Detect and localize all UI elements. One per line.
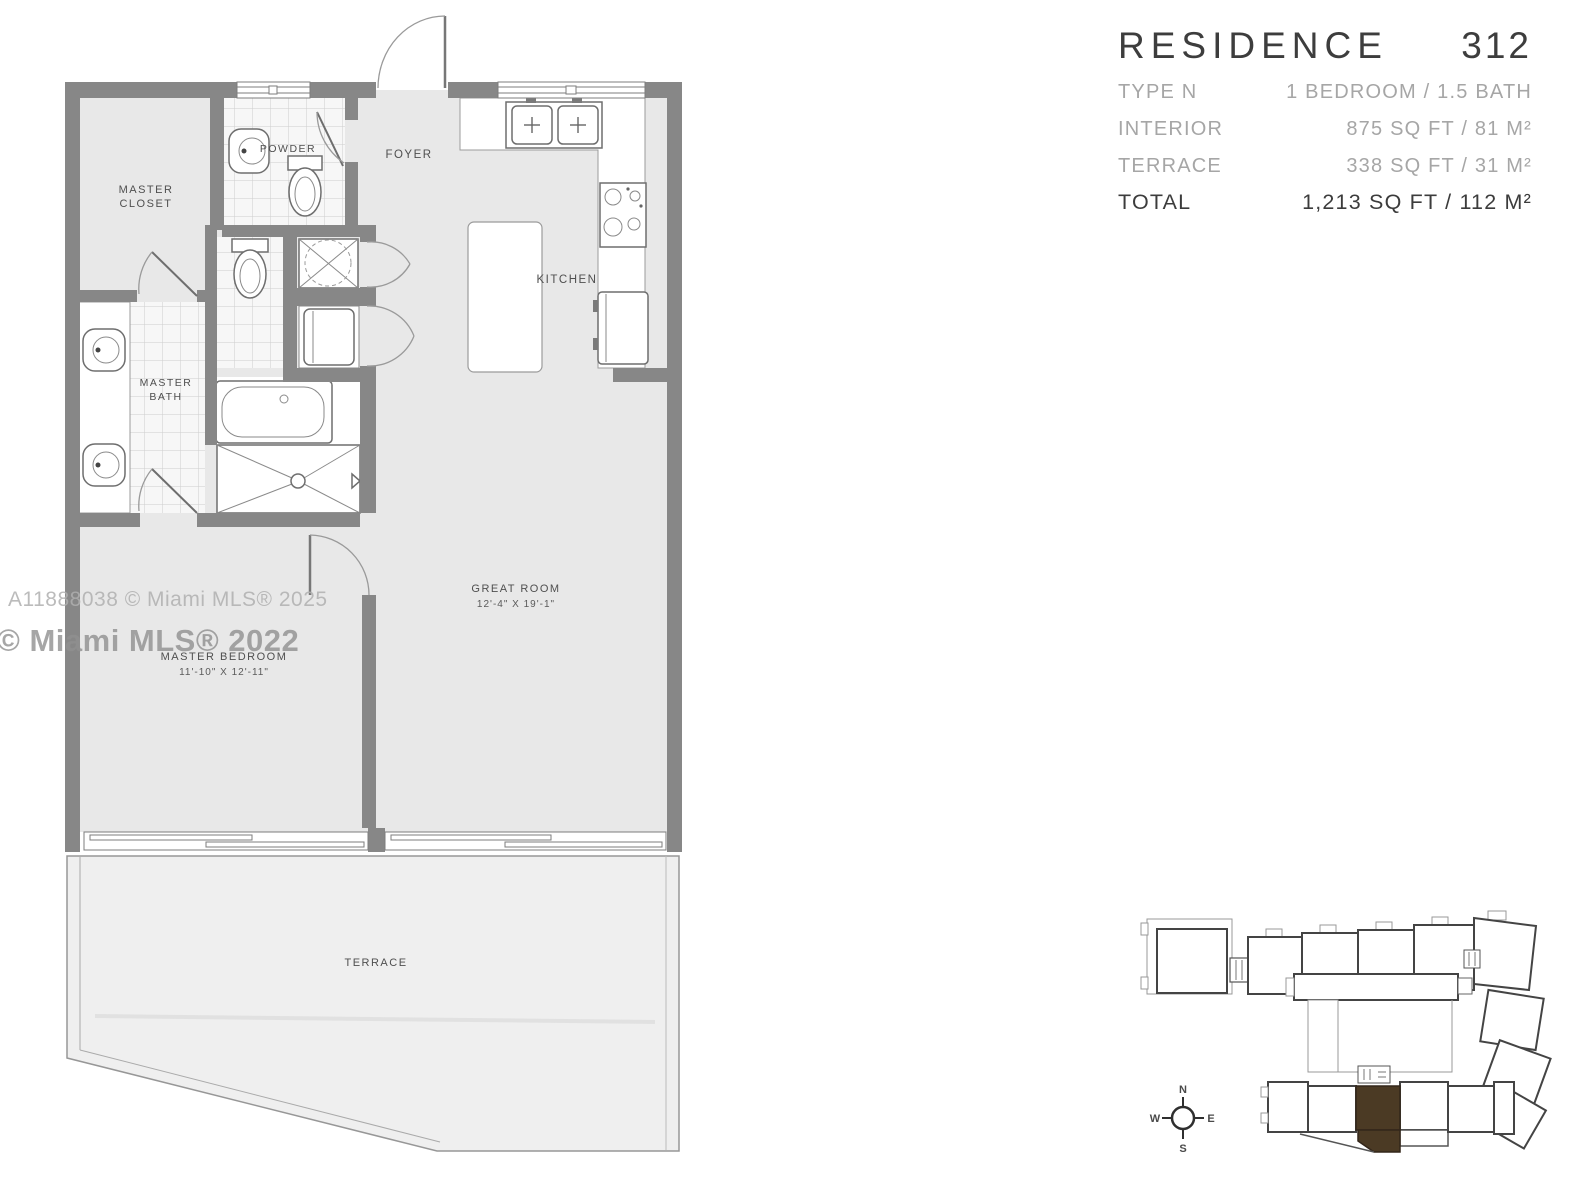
- compass-north-label: N: [1179, 1084, 1187, 1096]
- watermark-mls-2025: A11888038 © Miami MLS® 2025: [8, 588, 328, 611]
- residence-title: RESIDENCE: [1118, 26, 1388, 66]
- interior-label: INTERIOR: [1118, 118, 1223, 140]
- room-dim-great-room: 12'-4" X 19'-1": [477, 599, 555, 610]
- window-icon: [498, 82, 645, 98]
- bath-vanity: [78, 302, 130, 513]
- terrace-value: 338 SQ FT / 31 M²: [1346, 155, 1532, 177]
- kitchen-sink-icon: [506, 98, 602, 148]
- interior-value: 875 SQ FT / 81 M²: [1346, 118, 1532, 140]
- compass-south-label: S: [1179, 1143, 1186, 1155]
- key-plan-unit-highlight: [1356, 1086, 1400, 1152]
- room-label-master-closet: CLOSET: [119, 198, 172, 210]
- key-plan: [1141, 911, 1551, 1152]
- type-label: TYPE N: [1118, 81, 1197, 103]
- refrigerator-icon: [593, 292, 648, 364]
- kitchen-island: [468, 222, 542, 372]
- compass-east-label: E: [1207, 1113, 1214, 1125]
- floor-plan-page: { "title_block": { "title": "RESIDENCE",…: [0, 0, 1590, 1181]
- cooktop-icon: [600, 183, 646, 247]
- watermark-mls-2022: © Miami MLS® 2022: [0, 623, 299, 658]
- sliding-door-icon: [385, 832, 666, 850]
- terrace-area: [67, 856, 679, 1151]
- wc-toilet-icon: [232, 239, 268, 298]
- unit-number: 312: [1461, 26, 1532, 66]
- room-label-foyer: FOYER: [385, 149, 432, 161]
- room-label-master-closet: MASTER: [119, 184, 174, 196]
- compass-icon: N E S W: [1150, 1084, 1215, 1155]
- sliding-door-icon: [84, 832, 368, 850]
- shower-icon: [217, 445, 360, 513]
- terrace-label: TERRACE: [1118, 155, 1222, 177]
- total-value: 1,213 SQ FT / 112 M²: [1302, 191, 1532, 213]
- room-label-terrace: TERRACE: [344, 957, 407, 969]
- laundry-closet-icon: [299, 306, 359, 368]
- bath-sink-icon: [83, 329, 125, 371]
- compass-west-label: W: [1150, 1113, 1161, 1125]
- entry-door-icon: [378, 16, 445, 88]
- title-block: RESIDENCE 312 TYPE N 1 BEDROOM / 1.5 BAT…: [1118, 26, 1532, 213]
- window-icon: [237, 82, 310, 98]
- total-label: TOTAL: [1118, 191, 1191, 213]
- room-label-master-bath: BATH: [149, 391, 182, 403]
- room-label-kitchen: KITCHEN: [537, 274, 598, 286]
- utility-shaft-icon: [299, 239, 358, 288]
- room-dim-master-bedroom: 11'-10" X 12'-11": [179, 667, 269, 678]
- type-value: 1 BEDROOM / 1.5 BATH: [1286, 81, 1532, 103]
- room-label-powder: POWDER: [260, 143, 316, 155]
- bath-sink-icon: [83, 444, 125, 486]
- powder-toilet-icon: [288, 156, 322, 216]
- room-label-master-bath: MASTER: [140, 377, 193, 389]
- bathtub-icon: [216, 381, 332, 443]
- room-label-great-room: GREAT ROOM: [471, 583, 560, 595]
